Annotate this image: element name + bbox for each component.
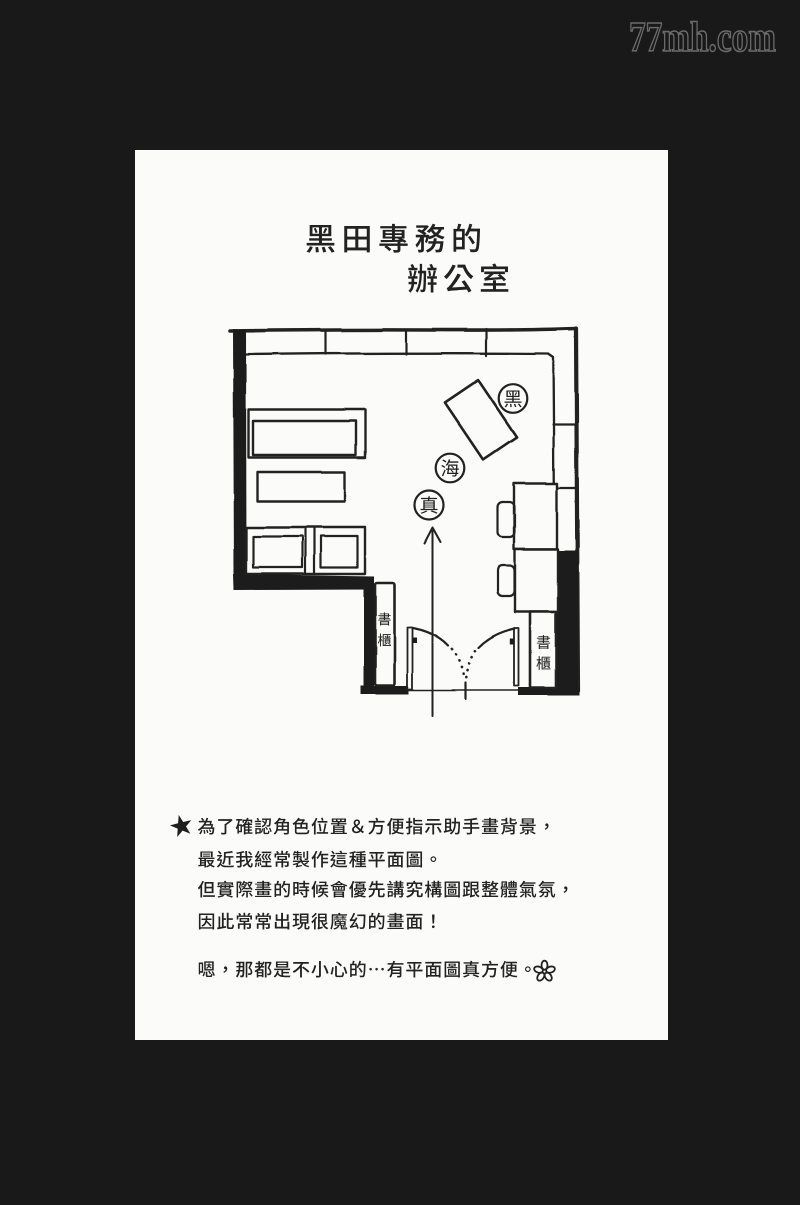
svg-text:77mh.com: 77mh.com bbox=[629, 15, 776, 61]
